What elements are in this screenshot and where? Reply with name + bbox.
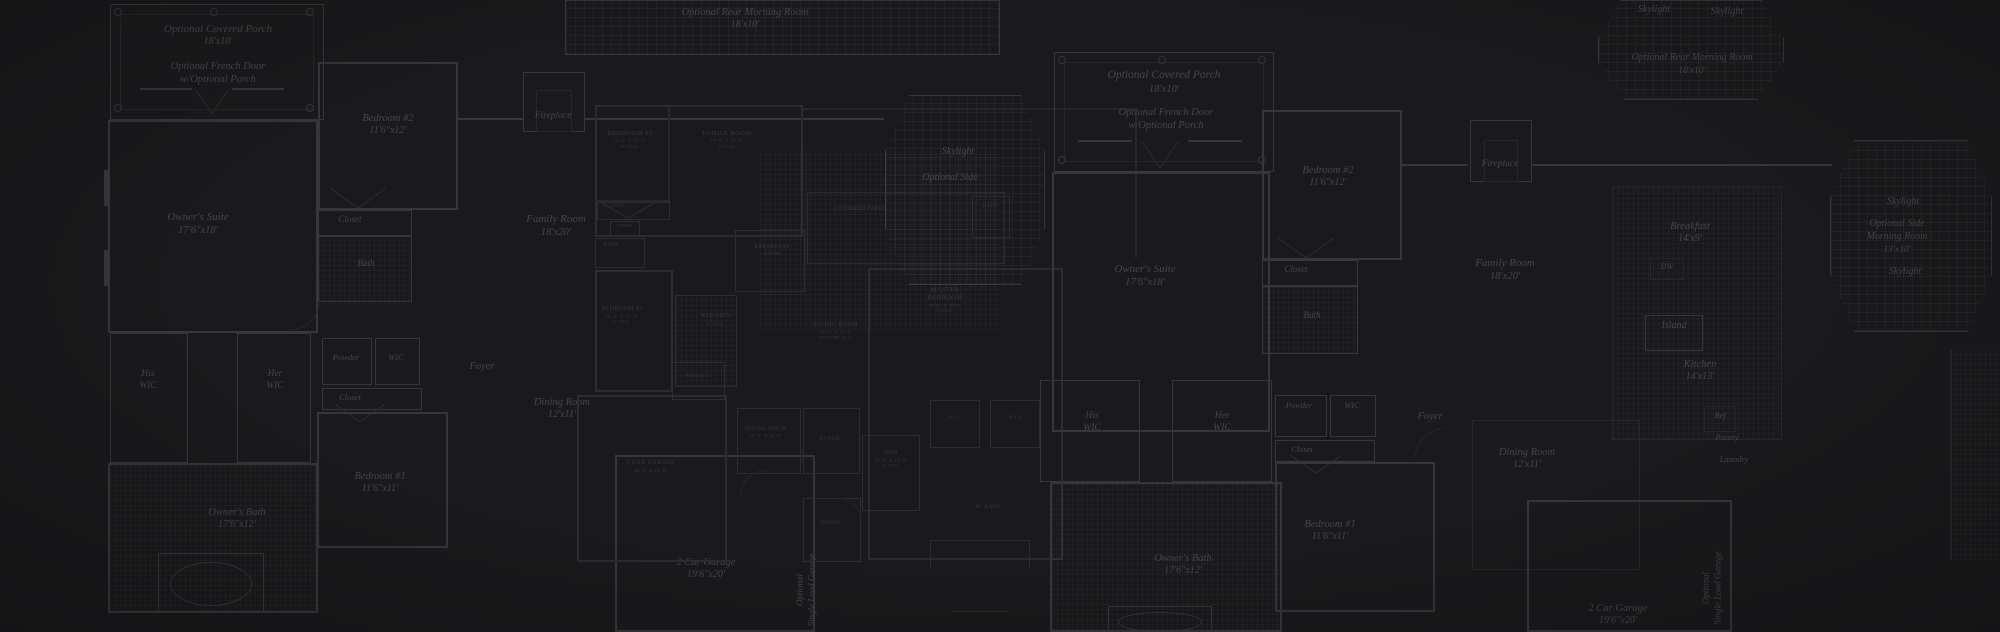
- room-label-line: Owner's Bath: [1154, 552, 1211, 565]
- room-label-line: Optional Covered Porch: [1108, 68, 1221, 83]
- label-fireplace: Fireplace: [1482, 158, 1519, 170]
- wall-segment: [1188, 140, 1242, 142]
- room-label-line: Ref: [1714, 410, 1725, 421]
- room-label-line: Single Load Garage: [1712, 552, 1724, 625]
- room-label-line: Skylight: [1887, 196, 1919, 209]
- room-label-line: Bath: [1304, 310, 1321, 322]
- porch-post-icon: [1158, 56, 1166, 64]
- label-island: Island: [1662, 320, 1687, 333]
- room-label-line: WIC: [1213, 422, 1230, 434]
- label-pantry: Pantry: [1715, 432, 1738, 443]
- label-foyer: Foyer: [1417, 410, 1442, 423]
- room-label-line: Skylight: [1889, 266, 1921, 279]
- room-label-line: Laundry: [1720, 454, 1749, 465]
- floorplan-background: Optional Covered Porch18'x10'Optional Fr…: [0, 0, 2000, 632]
- label-owners-suite: Owner's Suite17'6"x18': [1114, 262, 1175, 290]
- label-skylight1: Skylight: [1638, 4, 1670, 17]
- room-label-line: Foyer: [1417, 410, 1442, 423]
- porch-post-icon: [1258, 56, 1266, 64]
- bathtub-icon: [1118, 612, 1202, 632]
- room-label-line: Closet: [1291, 444, 1313, 455]
- label-laundry: Laundry: [1720, 454, 1749, 465]
- label-bath: Bath: [1304, 310, 1321, 322]
- room-label-line: 14'x9': [1670, 233, 1710, 246]
- room-label-line: 14'x13': [1684, 371, 1717, 384]
- room-label-line: 11'6"x12': [1302, 177, 1353, 190]
- label-family-room: Family Room18'x20': [1475, 256, 1535, 284]
- label-closet2: Closet: [1291, 444, 1313, 455]
- room-label-line: Optional Rear Morning Room: [1632, 52, 1753, 65]
- label-rear-morning-room: Optional Rear Morning Room18'x10': [1632, 52, 1753, 77]
- label-dw: DW: [1661, 262, 1673, 272]
- room-label-line: 18'x20': [1475, 270, 1535, 283]
- label-dining-room: Dining Room12'x11': [1499, 446, 1555, 472]
- porch-post-icon: [1058, 156, 1066, 164]
- label-owners-bath: Owner's Bath17'6"x12': [1154, 552, 1211, 578]
- room-label-line: 12'x11': [1499, 459, 1555, 472]
- closet-door-icon: [1278, 238, 1334, 258]
- room-label-line: 11'6"x11': [1304, 531, 1355, 544]
- label-wic: WIC: [1344, 400, 1360, 411]
- label-breakfast: Breakfast14'x9': [1670, 220, 1710, 246]
- room-label-line: Pantry: [1715, 432, 1738, 443]
- room-label-line: Fireplace: [1482, 158, 1519, 170]
- label-garage: 2 Car Garage19'6"x20': [1589, 602, 1648, 628]
- wall-segment: [1532, 164, 1832, 166]
- room-label-line: Family Room: [1475, 256, 1535, 270]
- wall-segment: [1950, 350, 1952, 560]
- room-label-line: Optional French Door: [1119, 106, 1214, 119]
- label-kitchen: Kitchen14'x13': [1684, 358, 1717, 384]
- closet-outline: [1262, 260, 1358, 286]
- label-his-wic: HisWIC: [1083, 410, 1100, 434]
- room-label-line: 18'x10': [1108, 83, 1221, 96]
- label-optional-french-door: Optional French Doorw/Optional Porch: [1119, 106, 1214, 133]
- porch-post-icon: [1058, 56, 1066, 64]
- room-label-line: Skylight: [1638, 4, 1670, 17]
- closet-door-icon: [1142, 142, 1178, 168]
- label-her-wic: HerWIC: [1213, 410, 1230, 434]
- label-powder: Powder: [1286, 400, 1312, 411]
- room-label-line: Powder: [1286, 400, 1312, 411]
- room-label-line: 2 Car Garage: [1589, 602, 1648, 615]
- room-label-line: Optional Side: [1867, 218, 1928, 231]
- label-ref: Ref: [1714, 410, 1725, 421]
- label-side-morning-room: Optional SideMorning Room13'x10': [1867, 218, 1928, 256]
- room-label-line: Her: [1213, 410, 1230, 422]
- room-label-line: 17'6"x18': [1114, 276, 1175, 289]
- room-label-line: WIC: [1083, 422, 1100, 434]
- label-skylight2: Skylight: [1711, 6, 1743, 19]
- room-label-line: 17'6"x12': [1154, 565, 1211, 578]
- plan-script-right: Optional Covered Porch18'x10'Optional Fr…: [0, 0, 2000, 632]
- room-label-line: Skylight: [1711, 6, 1743, 19]
- right-edge-fragment: [1950, 350, 2000, 560]
- label-skylight4: Skylight: [1889, 266, 1921, 279]
- label-optional-covered-porch: Optional Covered Porch18'x10': [1108, 68, 1221, 96]
- room-label-line: Bedroom #2: [1302, 164, 1353, 177]
- room-label-line: 13'x10': [1867, 244, 1928, 256]
- room-label-line: Bedroom #1: [1304, 518, 1355, 531]
- wall-segment: [1402, 164, 1468, 166]
- rear-morning-room-outline: [1598, 0, 1784, 100]
- room-label-line: Dining Room: [1499, 446, 1555, 459]
- room-label-line: Kitchen: [1684, 358, 1717, 371]
- room-label-line: WIC: [1344, 400, 1360, 411]
- label-skylight3: Skylight: [1887, 196, 1919, 209]
- room-label-line: Breakfast: [1670, 220, 1710, 233]
- room-label-line: 18'x10': [1632, 65, 1753, 77]
- room-label-line: DW: [1661, 262, 1673, 272]
- door-swing-icon: [1415, 428, 1445, 458]
- room-label-line: Optional: [1700, 552, 1712, 625]
- room-label-line: Owner's Suite: [1114, 262, 1175, 276]
- label-closet: Closet: [1284, 264, 1307, 276]
- room-label-line: Closet: [1284, 264, 1307, 276]
- room-label-line: 19'6"x20': [1589, 615, 1648, 628]
- label-bedroom1: Bedroom #111'6"x11': [1304, 518, 1355, 544]
- room-label-line: Island: [1662, 320, 1687, 333]
- room-label-line: His: [1083, 410, 1100, 422]
- room-label-line: Morning Room: [1867, 231, 1928, 244]
- label-bedroom2: Bedroom #211'6"x12': [1302, 164, 1353, 190]
- wall-segment: [1078, 140, 1132, 142]
- label-optional-single-load: OptionalSingle Load Garage: [1700, 552, 1723, 625]
- room-label-line: w/Optional Porch: [1119, 119, 1214, 132]
